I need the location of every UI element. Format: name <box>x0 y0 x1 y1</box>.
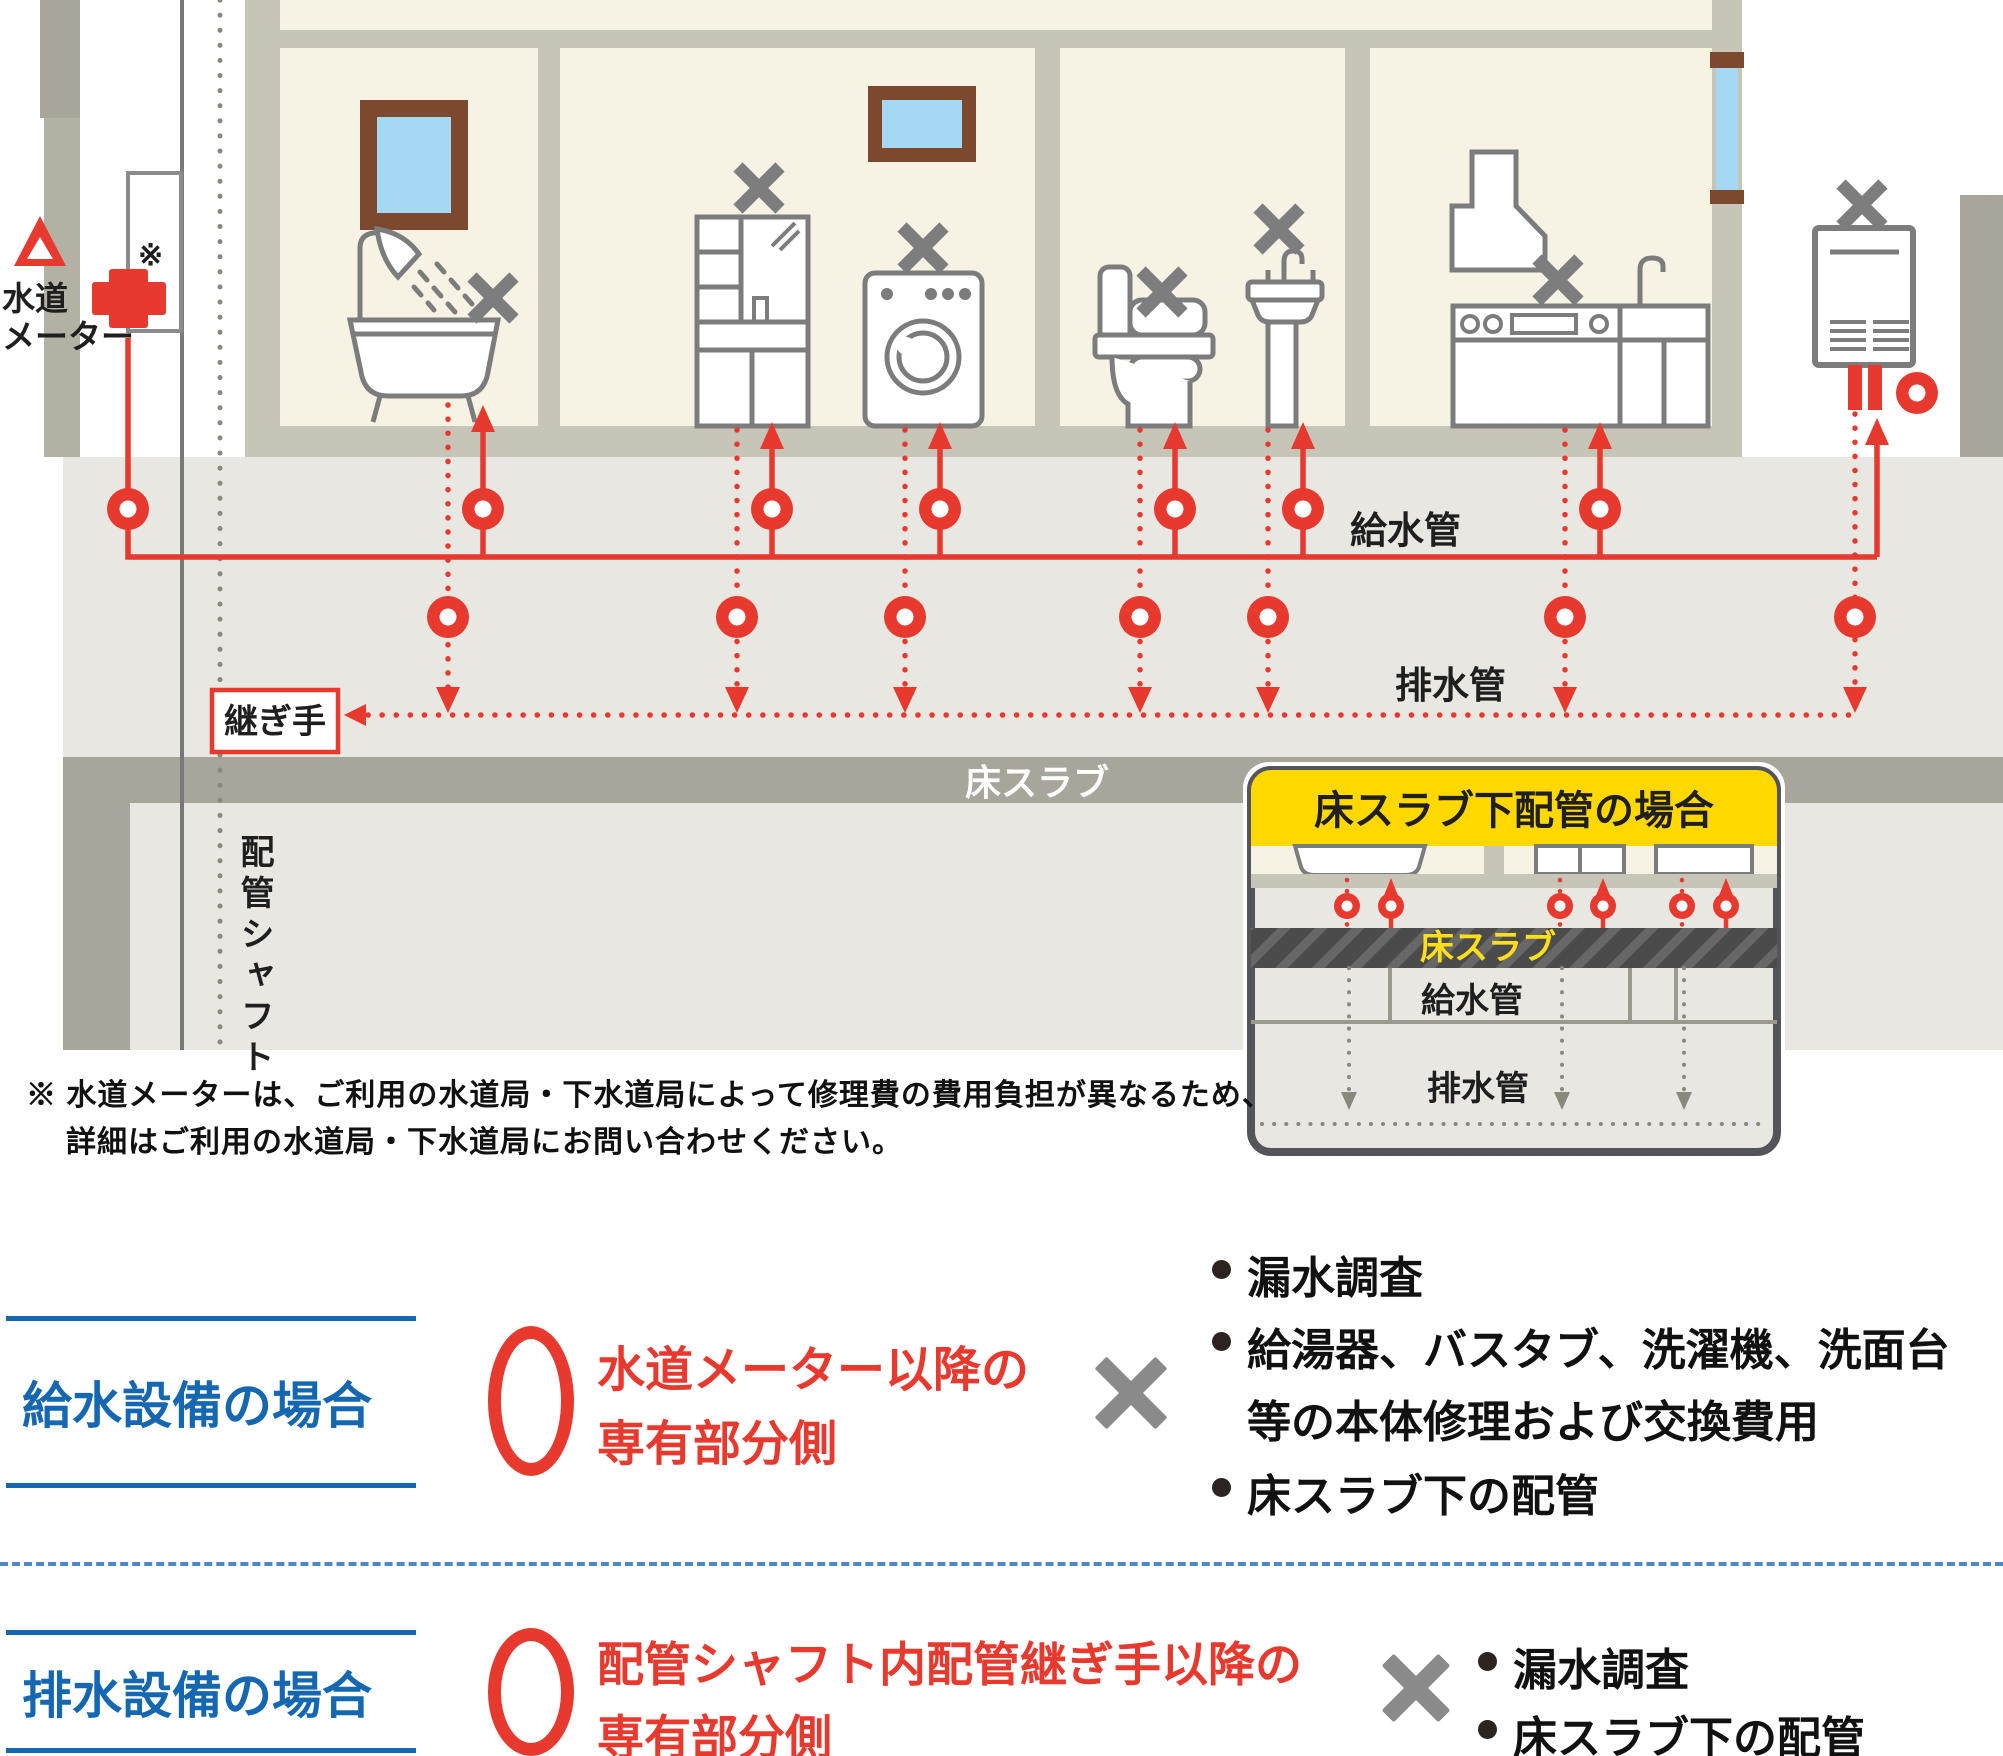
floor-band <box>245 426 1742 457</box>
washing-machine-icon <box>865 273 982 426</box>
not-covered-x-icon <box>1088 1350 1174 1436</box>
bullet-dot-icon <box>1478 1652 1497 1671</box>
bullet-dot-icon <box>1478 1720 1497 1739</box>
excluded-item: 床スラブ下の配管 <box>1212 1460 1599 1524</box>
laundry-window-icon <box>868 86 976 162</box>
joint-callout: 継ぎ手 <box>212 690 338 752</box>
bullet-dot-icon <box>1212 1332 1231 1351</box>
meter-note-mark: ※ <box>138 239 163 272</box>
wall-laundry-toilet <box>1035 48 1060 426</box>
inset-slab-label: 床スラブ <box>1420 928 1556 967</box>
covered-circle-icon <box>488 1326 574 1476</box>
inset-supply-label: 給水管 <box>1421 982 1523 1020</box>
vent-pipe-cap-bottom <box>1710 190 1744 204</box>
excluded-item: 給湯器、バスタブ、洗濯機、洗面台 <box>1212 1314 1950 1378</box>
not-covered-x-icon <box>1376 1648 1456 1728</box>
infographic-root: 床スラブ <box>0 0 2003 1756</box>
excluded-item-text: 漏水調査 <box>1247 1254 1423 1303</box>
footnote-line2: 詳細はご利用の水道局・下水道局にお問い合わせください。 <box>66 1117 903 1161</box>
inset-panel: 床スラブ下配管の場合 床スラブ 給水管 排水管 <box>1243 762 1785 1160</box>
water-heater-icon <box>1815 228 1913 410</box>
excluded-item: 漏水調査 <box>1478 1634 1689 1698</box>
covered-circle-icon <box>488 1628 574 1756</box>
supply-pipe-label: 給水管 <box>1350 510 1461 551</box>
inset-title: 床スラブ下配管の場合 <box>1314 788 1714 833</box>
drain-pipe-label: 排水管 <box>1395 665 1506 706</box>
bullet-dot-icon <box>1212 1260 1231 1279</box>
wall-toilet-kitchen <box>1345 48 1370 426</box>
excluded-item: 床スラブ下の配管 <box>1478 1702 1865 1756</box>
supply-covered-line2: 専有部分側 <box>597 1404 837 1474</box>
bullet-dot-icon <box>1212 1478 1231 1497</box>
wall-bath-laundry <box>538 48 560 426</box>
vent-pipe-cap-top <box>1710 52 1744 68</box>
excluded-item-continuation: 等の本体修理および交換費用 <box>1247 1386 1819 1450</box>
inset-counter2-icon <box>1656 846 1752 874</box>
drain-covered-line2: 専有部分側 <box>597 1699 832 1756</box>
x-heater-icon <box>1841 184 1883 226</box>
heater-pipe-right <box>1868 365 1882 410</box>
supply-section-title: 給水設備の場合 <box>6 1316 416 1488</box>
below-slab-column <box>63 803 130 1050</box>
bathroom-window-icon <box>360 100 468 230</box>
excluded-item: 漏水調査 <box>1212 1242 1423 1306</box>
section-separator <box>0 1562 2003 1566</box>
upper-floor-strip <box>245 0 1742 30</box>
drain-section-title: 排水設備の場合 <box>6 1630 416 1753</box>
vent-pipe-icon <box>1716 66 1738 190</box>
vanity-cabinet-icon <box>697 217 808 426</box>
floor-slab-label: 床スラブ <box>965 762 1109 803</box>
heater-pipe-left <box>1848 365 1862 410</box>
excluded-item-text: 漏水調査 <box>1513 1646 1689 1695</box>
excluded-item-text: 等の本体修理および交換費用 <box>1247 1398 1819 1447</box>
supply-covered-line1: 水道メーター以降の <box>597 1330 1029 1400</box>
drain-covered-line1: 配管シャフト内配管継ぎ手以降の <box>597 1626 1302 1695</box>
excluded-item-text: 床スラブ下の配管 <box>1247 1472 1599 1521</box>
water-meter-label-line2: メーター <box>2 318 134 355</box>
inset-drain-label: 排水管 <box>1427 1070 1529 1108</box>
excluded-item-text: 給湯器、バスタブ、洗濯機、洗面台 <box>1247 1326 1950 1375</box>
plumbing-cross-section-diagram: 床スラブ <box>0 0 2003 1170</box>
pipe-shaft-label: 配管シャフト <box>230 834 279 1080</box>
footnote-line1: ※ 水道メーターは、ご利用の水道局・下水道局によって修理費の費用負担が異なるため… <box>26 1070 1273 1114</box>
inset-bathtub-icon <box>1295 846 1425 875</box>
outside-column-top <box>40 0 80 118</box>
ceiling-band <box>245 30 1742 48</box>
excluded-item-text: 床スラブ下の配管 <box>1513 1714 1865 1756</box>
left-exterior-wall <box>245 0 280 457</box>
water-meter-label-line1: 水道 <box>2 280 68 317</box>
joint-label: 継ぎ手 <box>224 703 326 741</box>
